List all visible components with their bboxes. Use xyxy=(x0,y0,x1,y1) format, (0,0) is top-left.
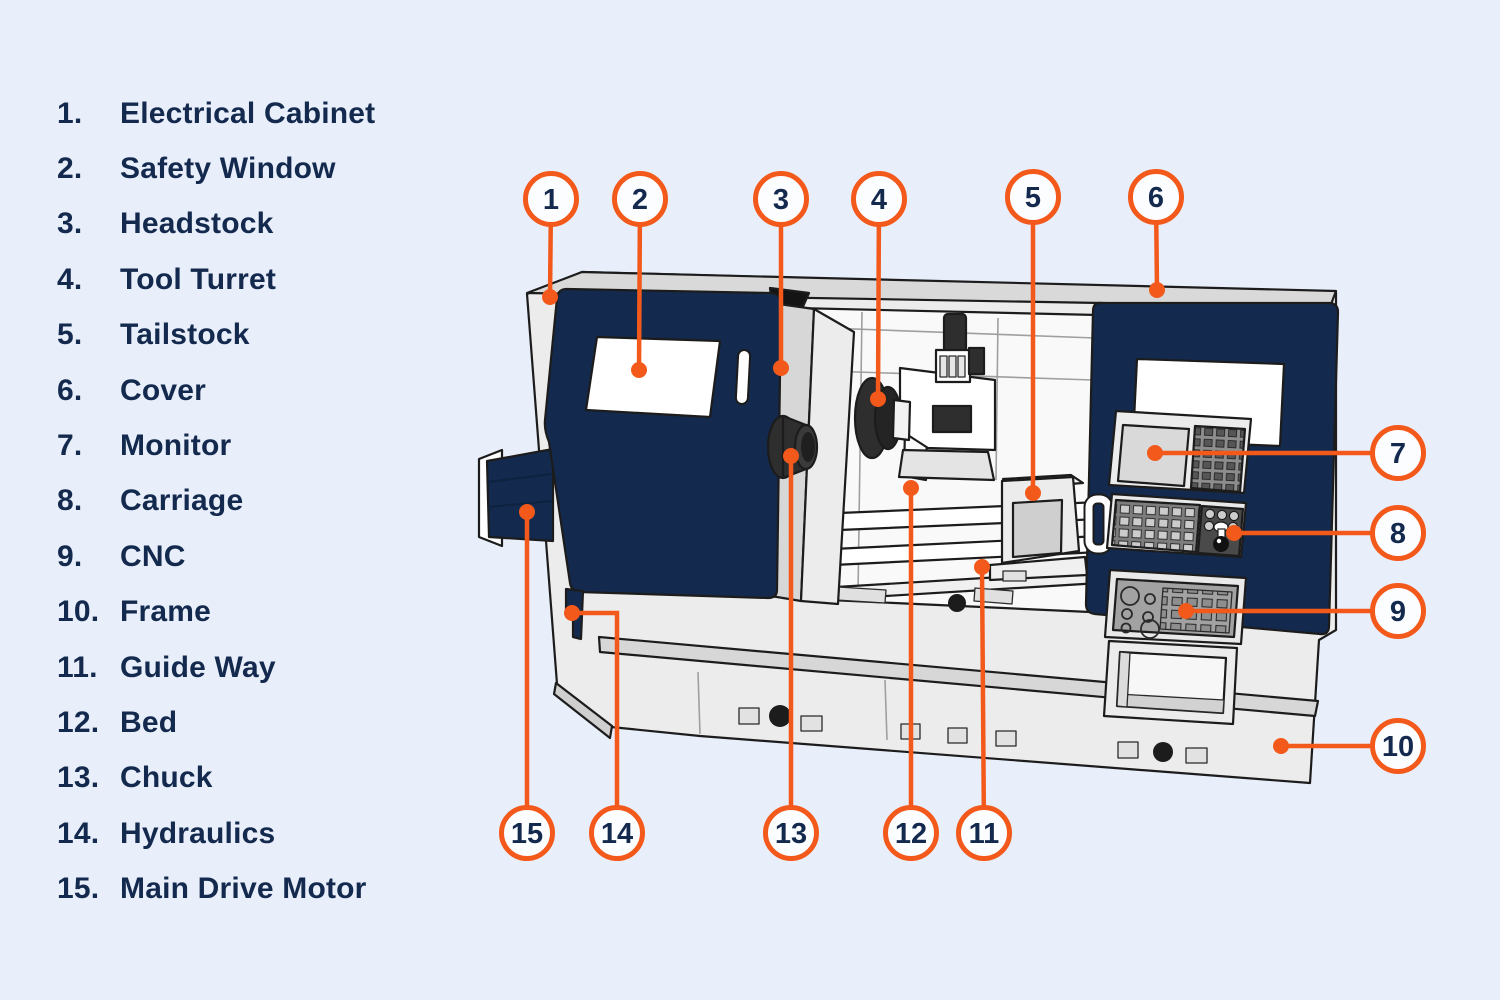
callout-number: 7 xyxy=(1390,438,1406,470)
pendant-stand xyxy=(1104,641,1237,724)
tool-block xyxy=(933,406,971,432)
infographic-canvas: 1.Electrical Cabinet2.Safety Window3.Hea… xyxy=(0,0,1500,1000)
callout-number: 2 xyxy=(632,184,648,216)
safety-window xyxy=(586,337,720,417)
callout-target-dot xyxy=(974,559,990,575)
monitor-keypad xyxy=(1191,426,1245,492)
callout-number: 3 xyxy=(773,184,789,216)
main-drive-motor xyxy=(479,449,553,546)
callout-number: 13 xyxy=(775,818,807,850)
cnc-panel xyxy=(1105,570,1246,644)
callout-target-dot xyxy=(870,391,886,407)
callout-number: 11 xyxy=(969,818,1000,850)
callout-number: 8 xyxy=(1390,518,1406,550)
callout-number: 14 xyxy=(601,818,633,850)
callout-number: 5 xyxy=(1025,182,1041,214)
cnc-lathe-diagram: 123456789101112131415 xyxy=(0,0,1500,1000)
callout-number: 10 xyxy=(1382,731,1414,763)
callout-target-dot xyxy=(1226,525,1242,541)
door-handle xyxy=(736,350,751,405)
keyboard-panel xyxy=(1107,494,1246,557)
callout-number: 12 xyxy=(895,818,927,850)
callout-target-dot xyxy=(783,448,799,464)
callout-15: 15 xyxy=(502,504,553,859)
callout-number: 9 xyxy=(1390,596,1406,628)
callout-target-dot xyxy=(519,504,535,520)
callout-target-dot xyxy=(1149,282,1165,298)
callout-number: 1 xyxy=(543,184,559,216)
safety-door xyxy=(545,289,781,598)
callout-target-dot xyxy=(1178,603,1194,619)
callout-line xyxy=(982,567,984,833)
callout-6: 6 xyxy=(1131,172,1182,299)
callout-target-dot xyxy=(631,362,647,378)
callout-target-dot xyxy=(773,360,789,376)
callout-target-dot xyxy=(903,480,919,496)
callout-line xyxy=(878,199,879,399)
callout-target-dot xyxy=(542,289,558,305)
turret-top-knob xyxy=(944,314,966,352)
machine xyxy=(479,272,1338,783)
callout-number: 15 xyxy=(511,818,543,850)
callout-number: 6 xyxy=(1148,182,1164,214)
callout-target-dot xyxy=(1147,445,1163,461)
callout-target-dot xyxy=(1025,485,1041,501)
keyboard-keys xyxy=(1112,500,1200,552)
callout-target-dot xyxy=(564,605,580,621)
callout-number: 4 xyxy=(871,184,887,216)
callout-target-dot xyxy=(1273,738,1289,754)
